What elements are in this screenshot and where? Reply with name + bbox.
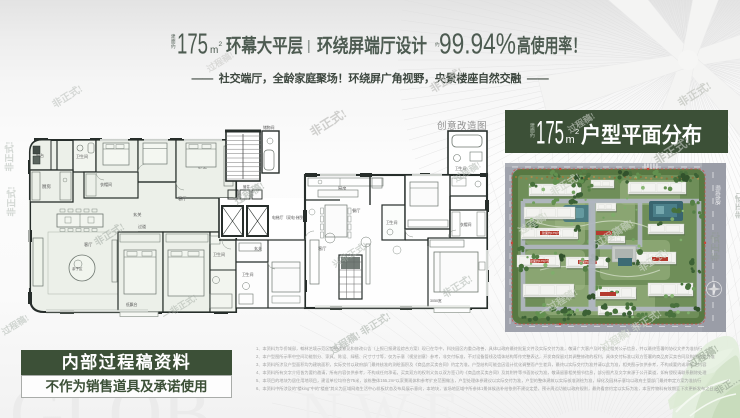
svg-text:建面约175户型: 建面约175户型 [542,230,562,235]
svg-text:桐城南路: 桐城南路 [714,185,721,205]
